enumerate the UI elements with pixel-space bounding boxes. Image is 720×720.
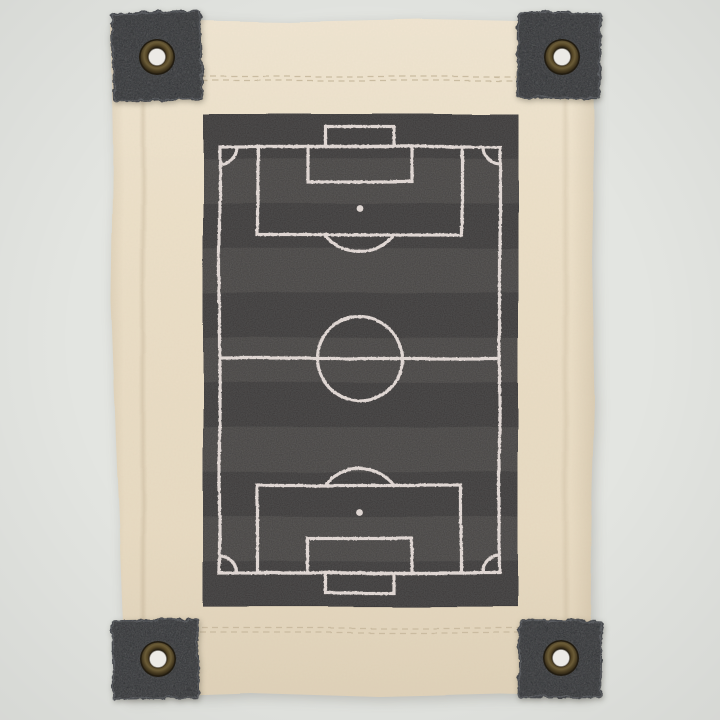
- canvas-banner-shadowed: [108, 18, 598, 700]
- grommet-bottom-left: [140, 641, 176, 677]
- canvas-banner: [108, 18, 598, 700]
- print-grain-dark: [203, 114, 518, 606]
- product-photo-stage: [0, 0, 720, 720]
- grommet-bottom-right: [543, 640, 579, 676]
- field-print: [203, 114, 518, 607]
- canvas-crease-left: [139, 20, 147, 698]
- grommet-top-left: [139, 39, 175, 75]
- canvas-crease-right: [561, 20, 570, 698]
- grommet-top-right: [544, 39, 580, 75]
- product-photo: [0, 0, 720, 720]
